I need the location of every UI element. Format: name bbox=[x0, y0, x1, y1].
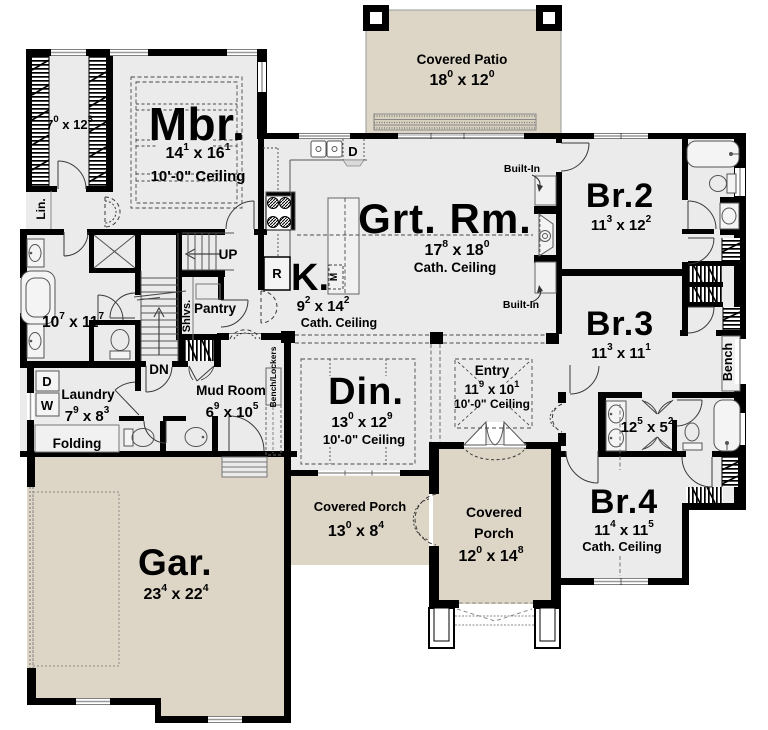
svg-text:Shlvs.: Shlvs. bbox=[181, 300, 193, 332]
svg-text:180 x 120: 180 x 120 bbox=[429, 68, 494, 89]
svg-text:Mud Room: Mud Room bbox=[196, 383, 266, 398]
svg-text:Br.2: Br.2 bbox=[586, 177, 654, 215]
svg-text:Mbr.: Mbr. bbox=[149, 98, 246, 150]
svg-text:10'-0" Ceiling: 10'-0" Ceiling bbox=[151, 168, 246, 185]
svg-text:Din.: Din. bbox=[328, 371, 404, 413]
svg-text:10'-0" Ceiling: 10'-0" Ceiling bbox=[454, 397, 530, 411]
svg-text:Cath. Ceiling: Cath. Ceiling bbox=[301, 316, 377, 330]
svg-text:Entry: Entry bbox=[475, 363, 510, 378]
svg-text:Bench: Bench bbox=[721, 343, 735, 381]
svg-text:D: D bbox=[42, 374, 51, 389]
svg-text:92 x 142: 92 x 142 bbox=[297, 295, 350, 315]
svg-text:Covered Patio: Covered Patio bbox=[417, 52, 508, 67]
svg-text:Lin.: Lin. bbox=[34, 198, 48, 219]
svg-text:119 x 101: 119 x 101 bbox=[465, 379, 521, 397]
svg-text:Porch: Porch bbox=[474, 525, 514, 541]
svg-text:W: W bbox=[41, 398, 54, 413]
svg-text:R: R bbox=[272, 266, 282, 281]
svg-text:Folding: Folding bbox=[53, 436, 102, 451]
svg-text:Bench/Lockers: Bench/Lockers bbox=[268, 346, 278, 407]
svg-text:178 x 180: 178 x 180 bbox=[424, 238, 489, 259]
svg-text:Br.3: Br.3 bbox=[586, 305, 654, 343]
svg-text:130 x 129: 130 x 129 bbox=[331, 411, 393, 431]
svg-text:Gar.: Gar. bbox=[138, 542, 212, 583]
svg-text:113 x 122: 113 x 122 bbox=[591, 214, 652, 234]
svg-text:Covered Porch: Covered Porch bbox=[314, 499, 407, 514]
svg-text:114 x 115: 114 x 115 bbox=[594, 519, 654, 539]
svg-text:M: M bbox=[329, 273, 340, 281]
svg-text:120 x 148: 120 x 148 bbox=[458, 544, 523, 565]
svg-text:UP: UP bbox=[219, 247, 238, 262]
svg-text:D: D bbox=[348, 144, 357, 159]
svg-text:10'-0" Ceiling: 10'-0" Ceiling bbox=[323, 432, 405, 447]
svg-text:125 x 52: 125 x 52 bbox=[621, 416, 674, 436]
svg-text:Cath. Ceiling: Cath. Ceiling bbox=[414, 260, 497, 275]
svg-text:141 x 161: 141 x 161 bbox=[165, 141, 230, 162]
svg-text:K.: K. bbox=[291, 257, 329, 299]
svg-text:70 x 123: 70 x 123 bbox=[46, 114, 93, 132]
svg-text:Built-In: Built-In bbox=[504, 163, 540, 175]
svg-text:Covered: Covered bbox=[466, 504, 522, 520]
svg-text:Grt. Rm.: Grt. Rm. bbox=[358, 195, 532, 242]
svg-text:79 x 83: 79 x 83 bbox=[65, 405, 110, 425]
svg-text:69 x 105: 69 x 105 bbox=[206, 401, 259, 421]
svg-text:Pantry: Pantry bbox=[194, 301, 237, 316]
svg-text:234 x 224: 234 x 224 bbox=[143, 582, 208, 603]
svg-text:DN: DN bbox=[149, 362, 169, 377]
svg-text:113 x 111: 113 x 111 bbox=[591, 342, 651, 362]
svg-text:Br.4: Br.4 bbox=[590, 483, 658, 521]
svg-text:Cath. Ceiling: Cath. Ceiling bbox=[582, 539, 662, 554]
svg-text:130 x 84: 130 x 84 bbox=[328, 519, 384, 540]
svg-text:107 x 117: 107 x 117 bbox=[42, 311, 104, 331]
svg-text:Laundry: Laundry bbox=[61, 387, 115, 402]
